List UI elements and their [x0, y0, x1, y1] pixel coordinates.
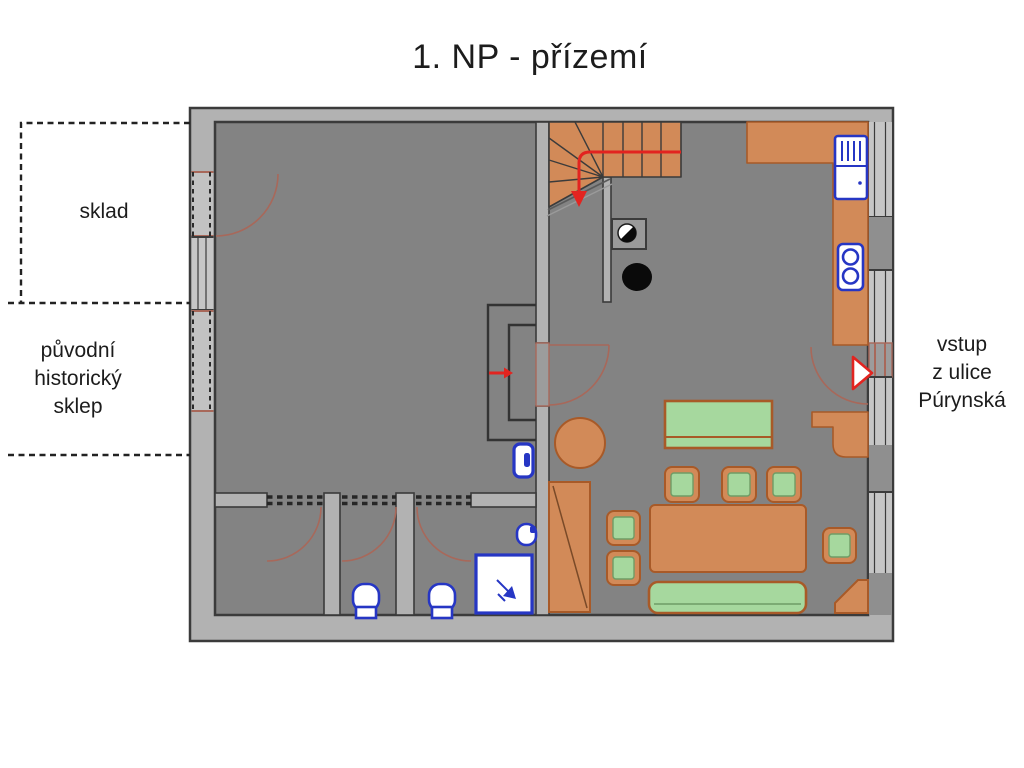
right-wall-pier-1 — [869, 217, 892, 270]
washbasin-bath — [517, 524, 536, 545]
dividing-wall-upper — [536, 122, 549, 343]
round-table — [555, 418, 605, 468]
right-window-4 — [869, 492, 892, 573]
bath-wall-right — [471, 493, 536, 507]
bath-wall-left — [215, 493, 267, 507]
armchair-row — [665, 467, 801, 502]
left-wall-openings — [192, 172, 214, 411]
right-wall-pier-3 — [869, 573, 892, 615]
right-window-3 — [869, 377, 892, 445]
chimney — [622, 263, 652, 291]
refrigerator — [835, 136, 867, 199]
bench — [649, 582, 806, 613]
inner-door-opening — [536, 343, 549, 406]
shower — [476, 555, 532, 613]
left-window — [192, 237, 214, 310]
right-window-2 — [869, 270, 892, 343]
floor-plan-page: 1. NP - přízemí sklad původní historický… — [0, 0, 1024, 768]
wardrobe — [549, 482, 590, 612]
right-window-1 — [869, 122, 892, 217]
right-wall-openings — [869, 122, 892, 615]
toilet — [429, 584, 455, 618]
floor-plan-drawing — [0, 0, 1024, 768]
dining-table — [650, 505, 806, 572]
stove — [838, 244, 863, 290]
right-wall-pier-2 — [869, 445, 892, 492]
annotation-outlines — [8, 123, 190, 455]
stair-spine-wall — [603, 177, 611, 302]
storage-dashed-outline — [21, 123, 190, 303]
toilet — [353, 584, 379, 618]
washbasin-hall — [514, 444, 533, 477]
wc-partition-1 — [324, 493, 340, 615]
wc-partition-2 — [396, 493, 414, 615]
dividing-wall-lower — [536, 406, 549, 615]
sofa — [665, 401, 772, 448]
